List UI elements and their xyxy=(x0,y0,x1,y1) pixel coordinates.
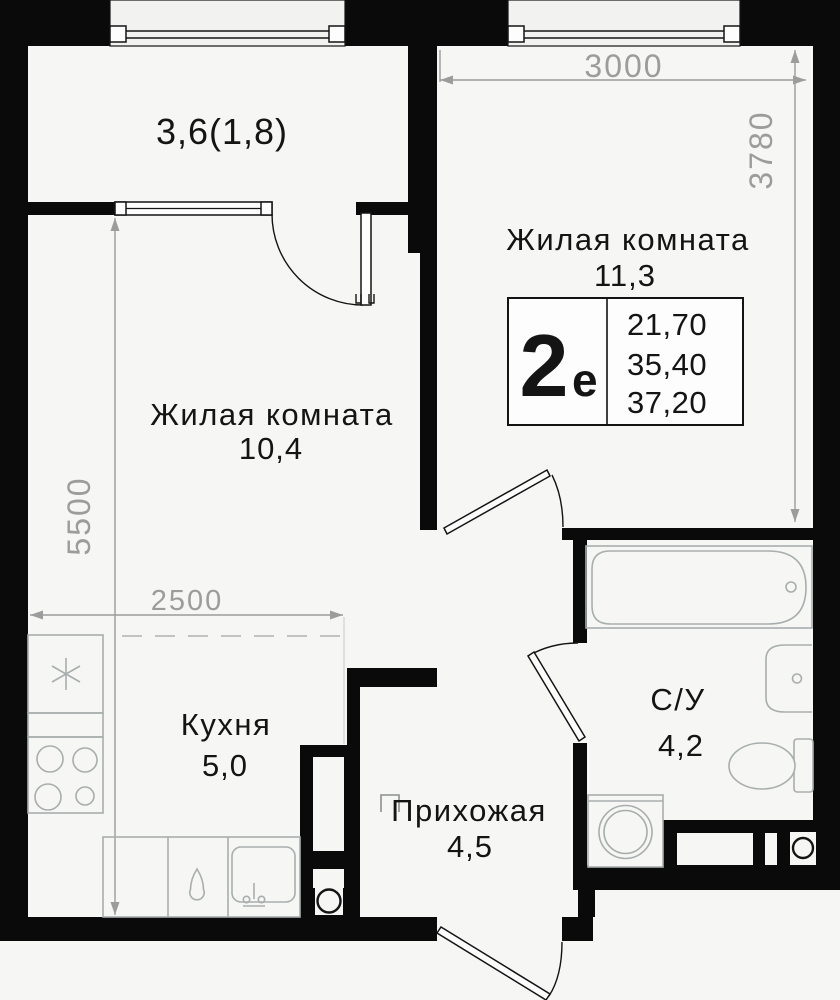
drop-icon xyxy=(190,869,204,900)
balcony-area-label: 3,6(1,8) xyxy=(156,111,288,152)
fridge-icon xyxy=(28,635,103,713)
toilet-icon xyxy=(729,739,813,792)
stamp-type-letter: е xyxy=(572,354,598,406)
dimension-right: 3780 xyxy=(743,50,800,522)
living-room-2-area: 10,4 xyxy=(239,431,303,466)
dim-kitchen-label: 2500 xyxy=(151,585,224,617)
washing-machine-icon xyxy=(588,795,663,867)
shaft-icon xyxy=(313,757,344,915)
living-room-2-name: Жилая комната xyxy=(150,397,393,432)
window-icon xyxy=(115,202,272,215)
door-icon xyxy=(272,213,374,305)
duct-icon xyxy=(677,832,816,865)
dim-left-label: 5500 xyxy=(61,476,97,555)
door-icon xyxy=(528,643,585,741)
window-icon xyxy=(110,0,345,46)
door-icon xyxy=(437,927,562,1000)
dim-right-label: 3780 xyxy=(743,110,779,189)
floor-plan-canvas: 3000 3780 5500 2500 xyxy=(0,0,840,1000)
dimension-kitchen: 2500 xyxy=(30,585,343,620)
kitchen-area: 5,0 xyxy=(202,748,248,783)
stamp-value-3: 37,20 xyxy=(627,385,707,420)
hallway-area: 4,5 xyxy=(447,829,493,864)
stamp-type-digit: 2 xyxy=(520,316,569,415)
hallway-name: Прихожая xyxy=(391,793,547,828)
window-icon xyxy=(508,0,740,46)
living-room-1-area: 11,3 xyxy=(594,258,656,293)
apartment-stamp: 2 е 21,70 35,40 37,20 xyxy=(508,298,743,425)
washbasin-icon xyxy=(766,645,812,712)
bathroom-area: 4,2 xyxy=(658,728,704,763)
floor-plan: 3000 3780 5500 2500 xyxy=(0,0,840,1000)
stamp-value-1: 21,70 xyxy=(627,307,707,342)
door-icon xyxy=(444,470,563,534)
stamp-value-2: 35,40 xyxy=(627,347,707,382)
dim-top-label: 3000 xyxy=(584,48,663,84)
stove-icon xyxy=(28,737,103,813)
dimension-top: 3000 xyxy=(440,48,806,85)
bathroom-name: С/У xyxy=(650,682,705,717)
bathtub-icon xyxy=(586,546,812,628)
dimension-left: 5500 xyxy=(61,218,120,915)
kitchen-name: Кухня xyxy=(181,707,271,742)
kitchen-sink-icon xyxy=(232,847,295,906)
living-room-1-name: Жилая комната xyxy=(506,222,749,257)
counter-icon xyxy=(28,713,103,737)
